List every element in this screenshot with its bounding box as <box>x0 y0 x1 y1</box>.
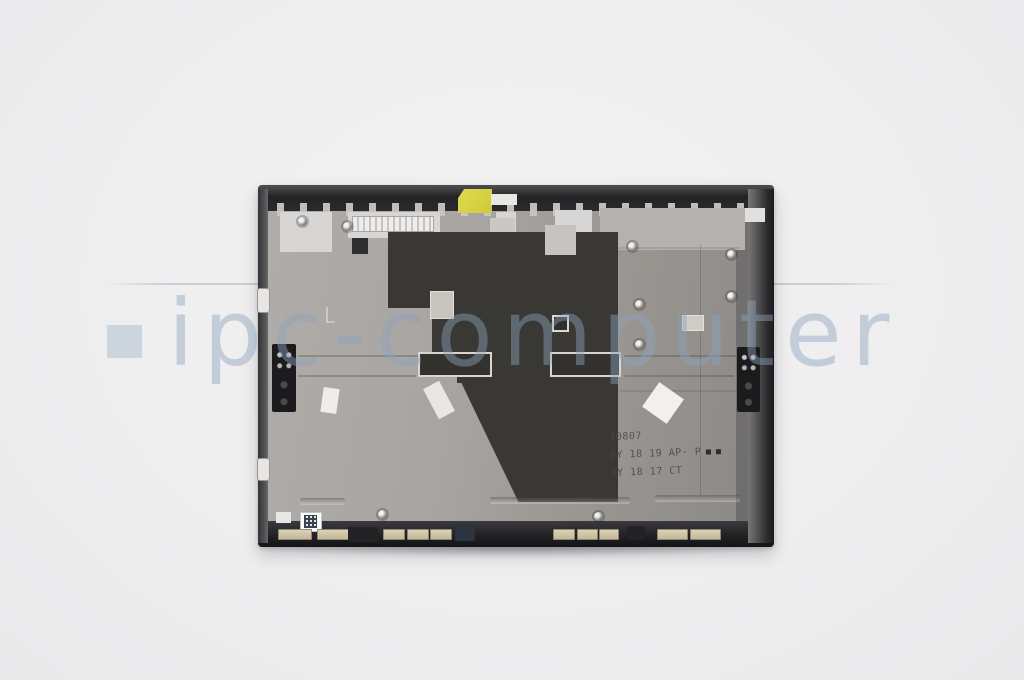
hinge-pad <box>553 529 575 540</box>
stamp-square <box>706 449 711 454</box>
part-markings: 10807 DY 18 19 AP· P DY 18 17 CT <box>609 425 722 483</box>
bottom-connector-dark <box>348 527 378 542</box>
screw-boss <box>727 250 736 259</box>
screw-boss <box>343 222 352 231</box>
bottom-connector-dark2 <box>627 526 645 540</box>
hinge-pad <box>278 529 312 540</box>
hinge-pad <box>599 529 619 540</box>
screw-boss <box>594 512 603 521</box>
hinge-pad <box>430 529 452 540</box>
bottom-groove-3 <box>655 495 740 502</box>
panel-seam-2 <box>620 390 740 392</box>
white-pad-small <box>276 512 291 523</box>
stamp-square <box>716 449 721 454</box>
bottom-groove-2 <box>490 497 630 504</box>
watermark-text: ipc-computer <box>168 288 899 380</box>
hinge-pad <box>317 529 351 540</box>
bottom-connector-blue <box>455 527 475 541</box>
yellow-sticker <box>458 189 492 213</box>
sticker-pull-tab <box>491 194 517 205</box>
hinge-pad <box>383 529 405 540</box>
hinge-pad <box>657 529 688 540</box>
screw-boss <box>298 217 307 226</box>
panel-seam-1 <box>590 247 740 249</box>
hinge-pad <box>407 529 429 540</box>
left-edge-tab-lower <box>257 458 270 481</box>
top-right-region <box>600 208 745 250</box>
mylar-small-tab <box>490 218 515 232</box>
watermark-square <box>107 325 142 358</box>
white-decal-rect <box>320 387 339 414</box>
bottom-groove-1 <box>300 498 345 505</box>
ribbon-connector <box>352 216 434 232</box>
small-dark-square <box>352 238 368 254</box>
photo-canvas: L 10807 DY 18 19 AP· P DY 18 17 CT ipc-c… <box>0 0 1024 680</box>
hinge-pad <box>690 529 721 540</box>
screw-boss <box>378 510 387 519</box>
top-right-tab <box>745 208 765 222</box>
hinge-pad <box>577 529 598 540</box>
screw-boss <box>628 242 637 251</box>
mylar-notch-tab <box>545 225 576 255</box>
